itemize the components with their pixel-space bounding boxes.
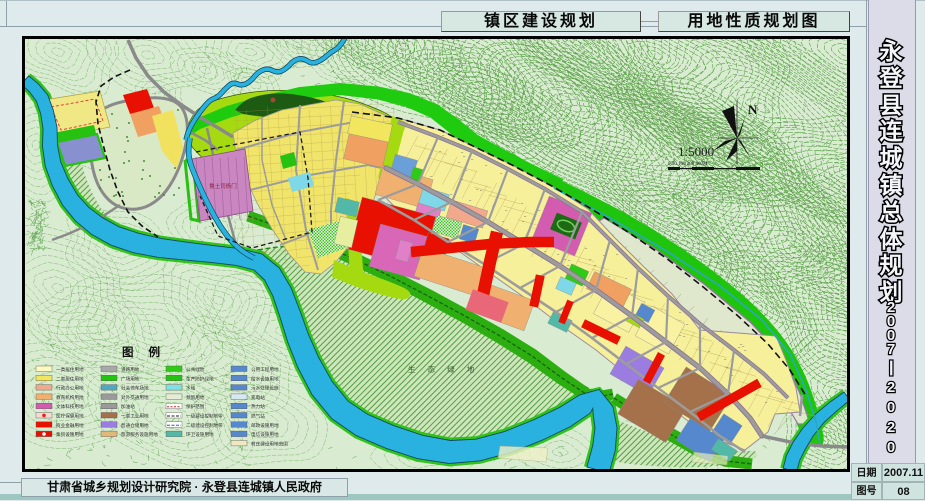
svg-text:7: 7 [887, 341, 895, 358]
svg-text:体: 体 [880, 226, 904, 252]
svg-text:登: 登 [879, 65, 904, 91]
svg-text:规: 规 [880, 252, 903, 278]
svg-text:总: 总 [880, 199, 903, 225]
svg-text:连: 连 [880, 118, 904, 144]
svg-text:县: 县 [880, 92, 903, 118]
svg-text:镇: 镇 [880, 172, 903, 198]
svg-text:0: 0 [887, 399, 895, 416]
svg-text:2: 2 [887, 419, 895, 436]
svg-text:永: 永 [880, 38, 903, 64]
svg-text:0: 0 [887, 439, 895, 456]
svg-text:2: 2 [887, 379, 895, 396]
svg-text:城: 城 [880, 145, 903, 171]
